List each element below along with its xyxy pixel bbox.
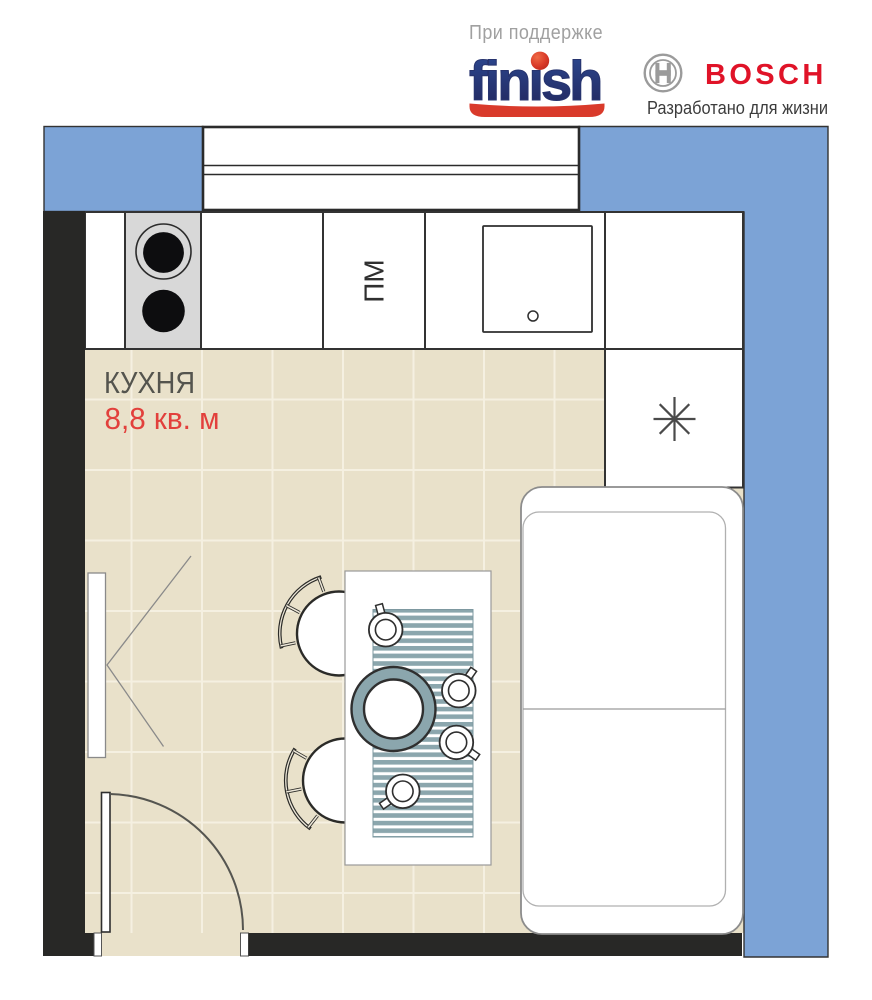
svg-text:При поддержке: При поддержке [469,21,603,44]
svg-text:КУХНЯ: КУХНЯ [104,365,195,400]
svg-text:BOSCH: BOSCH [705,59,827,91]
svg-text:8,8 кв. м: 8,8 кв. м [105,401,220,436]
svg-text:ПМ: ПМ [359,259,390,302]
svg-text:Разработано для жизни: Разработано для жизни [647,98,828,118]
